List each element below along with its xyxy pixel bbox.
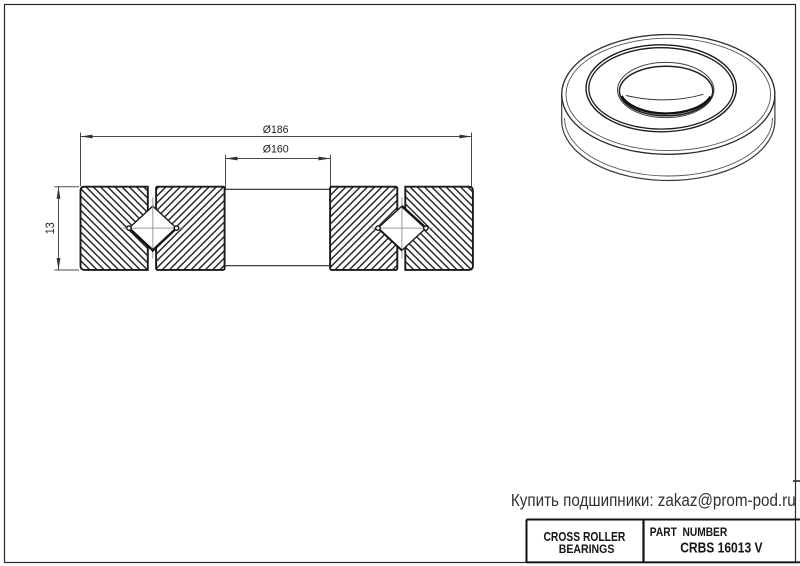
svg-text:Ø186: Ø186 bbox=[263, 124, 289, 136]
svg-text:13: 13 bbox=[45, 222, 58, 234]
svg-text:CRBS 16013 V: CRBS 16013 V bbox=[680, 539, 763, 556]
svg-text:Ø160: Ø160 bbox=[263, 143, 289, 155]
svg-text:PART NUMBER: PART NUMBER bbox=[650, 526, 727, 539]
svg-text:CROSS ROLLER: CROSS ROLLER bbox=[544, 531, 626, 544]
svg-text:Купить подшипники: zakaz@prom-: Купить подшипники: zakaz@prom-pod.ru bbox=[511, 491, 796, 510]
svg-text:BEARINGS: BEARINGS bbox=[559, 543, 615, 556]
